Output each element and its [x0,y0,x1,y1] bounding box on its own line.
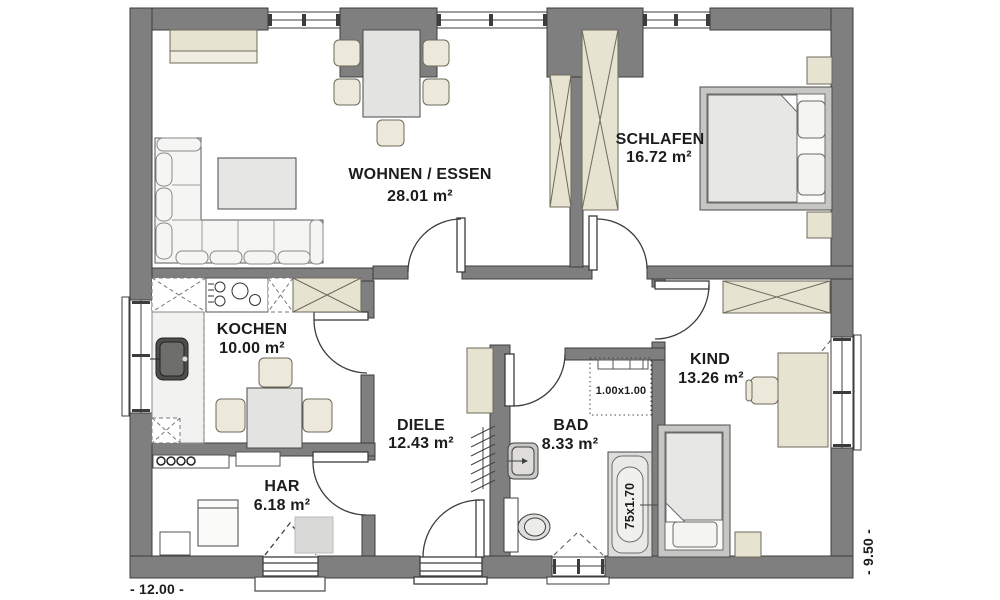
room-area-diele: 12.43 m² [388,435,454,453]
kitchen-counter-left [150,312,204,443]
skylight-label: 1.00x1.00 [596,385,647,397]
room-label-kochen: KOCHEN [217,321,288,339]
desk [778,353,828,447]
room-area-schlafen: 16.72 m² [626,149,692,167]
room-area-wohnen: 28.01 m² [387,188,453,206]
kind-nightstand [735,532,761,557]
kitchen-furniture [150,278,361,448]
kitchen-counter-top [152,278,361,312]
desk-chair [746,377,778,404]
kitchen-table [247,388,302,448]
door-har [313,452,368,515]
window-living-left [268,12,340,28]
kind-furniture [658,281,830,557]
window-bath [547,532,609,584]
wardrobe-kind [723,281,830,313]
door-living [408,218,465,272]
room-label-schlafen: SCHLAFEN [616,131,705,149]
door-terrace [414,500,487,584]
door-kind [655,281,709,339]
room-label-diele: DIELE [397,417,445,435]
dimension-depth: - 9.50 - [860,529,876,575]
double-bed [700,87,832,210]
har-box [160,532,190,555]
single-bed [658,425,730,557]
living-room-furniture [155,30,571,264]
door-bedroom [589,216,647,270]
room-area-kochen: 10.00 m² [219,340,285,358]
room-label-kind: KIND [690,351,730,369]
window-living-right [437,12,547,28]
floor-plan-drawing [0,0,1000,600]
nightstand-bottom [807,212,832,238]
toilet-icon [504,498,550,552]
sideboard [170,30,257,63]
washing-machine [198,500,238,546]
wardrobe-bedroom [582,30,618,210]
nightstand-top [807,57,832,84]
room-area-kind: 13.26 m² [678,370,744,388]
bathtub-label: 75x1.70 [623,483,637,530]
living-cabinet [550,75,571,207]
har-shelf [236,452,280,466]
door-bath [505,354,565,406]
doormat [295,517,333,553]
floor-plan: WOHNEN / ESSEN 28.01 m² SCHLAFEN 16.72 m… [0,0,1000,600]
room-area-har: 6.18 m² [254,497,311,515]
window-bedroom [643,12,710,28]
dimension-width: - 12.00 - [130,581,184,597]
dining-table [363,30,420,117]
room-label-bad: BAD [553,417,588,435]
door-kitchen [314,312,368,373]
room-area-bad: 8.33 m² [542,436,599,454]
sink-icon [150,338,188,380]
coffee-table [218,158,296,209]
room-label-wohnen: WOHNEN / ESSEN [348,166,491,184]
washbasin-icon [508,443,538,479]
room-label-har: HAR [264,478,299,496]
hall-cabinet [467,348,493,413]
